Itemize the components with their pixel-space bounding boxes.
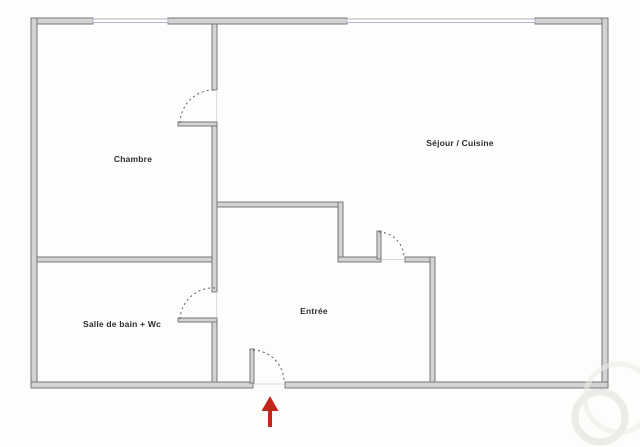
wall-entree-top (217, 202, 343, 207)
room-label-entree: Entrée (300, 306, 328, 316)
wall-left (31, 18, 37, 388)
watermark-ring-icon (575, 392, 625, 442)
room-label-salle-de-bain-wc: Salle de bain + Wc (83, 319, 161, 329)
wall-top-segment-3 (535, 18, 608, 24)
door-arc-bath-icon (180, 288, 215, 319)
door-leaf-entrance (250, 349, 254, 383)
wall-entree-step-vertical (338, 202, 343, 262)
floorplan-image: Chambre Séjour / Cuisine Salle de bain +… (0, 0, 640, 447)
window-chambre-icon (93, 19, 168, 23)
wall-top-segment-2 (168, 18, 347, 24)
wall-right (602, 18, 608, 388)
wall-entree-right (430, 257, 435, 382)
entrance-arrow-icon (262, 396, 279, 427)
door-leaf-sejour (377, 231, 381, 259)
room-label-chambre: Chambre (114, 154, 152, 164)
wall-bath-right-lower (212, 318, 217, 382)
room-label-sejour-cuisine: Séjour / Cuisine (426, 138, 494, 148)
door-arc-chambre-icon (180, 90, 215, 123)
wall-bottom-segment-left (31, 382, 253, 388)
wall-chambre-right-upper (212, 24, 217, 90)
wall-chambre-right-lower (212, 122, 217, 292)
wall-top-segment-1 (31, 18, 93, 24)
wall-bottom-segment-right (285, 382, 608, 388)
floorplan-drawing: Chambre Séjour / Cuisine Salle de bain +… (0, 0, 640, 447)
door-arc-sejour-icon (379, 232, 404, 258)
door-leaf-bath (178, 318, 217, 322)
door-leaf-chambre (178, 122, 217, 126)
wall-entree-step-horizontal-1 (338, 257, 381, 262)
door-arc-entrance-icon (253, 350, 284, 382)
wall-chambre-bath-divider (37, 257, 212, 262)
window-sejour-icon (347, 19, 535, 23)
